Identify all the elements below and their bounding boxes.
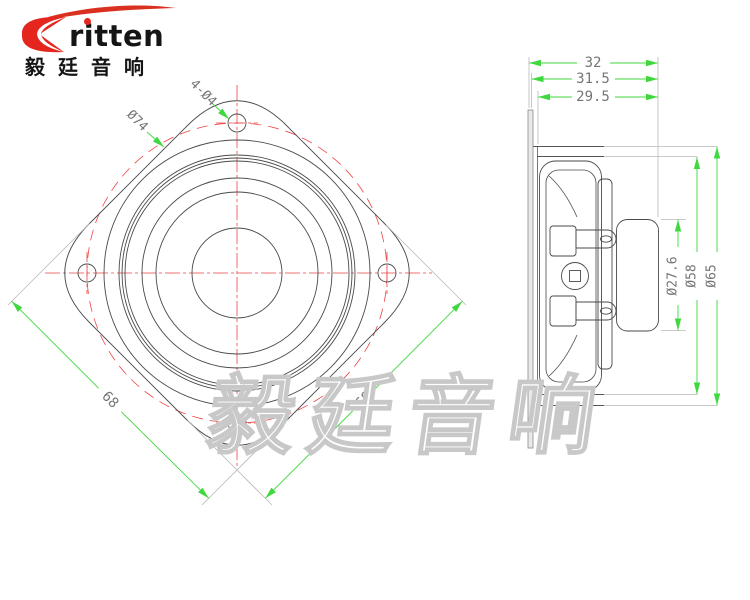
leader-mounting-holes: 4-Ø4 (187, 77, 229, 119)
technical-drawing-svg: 4-Ø4 Ø74 68 68 (0, 0, 750, 600)
dim-magnet-dia: Ø27.6 (666, 220, 681, 331)
basket-step-ring (598, 179, 612, 369)
terminal-body-top (550, 226, 576, 256)
leader-line (213, 104, 229, 119)
dim-label-bolt-circle: Ø74 (123, 107, 150, 134)
dim-square-left: 68 (12, 301, 209, 498)
dim-frame-dia: Ø58 (685, 157, 700, 395)
brand-name: ritten (69, 22, 164, 51)
magnet (617, 220, 659, 332)
logo-swoosh (48, 5, 176, 19)
dim-line (12, 301, 99, 388)
terminal-body-bottom (550, 296, 576, 326)
leader-line (147, 132, 164, 147)
screw-boss (562, 263, 589, 290)
tab-hole-bottom (601, 308, 612, 314)
dim-total-depth: 32 (529, 55, 658, 71)
dim-label-flange-dia: Ø65 (705, 264, 720, 287)
brand-logo: ritten 毅廷音响 (12, 2, 192, 82)
brand-name-chinese: 毅廷音响 (25, 51, 157, 80)
dim-flange-dia: Ø65 (705, 147, 720, 406)
cone-profile-upper (549, 176, 577, 217)
leader-bolt-circle: Ø74 (123, 107, 164, 147)
dim-depth-behind-front: 31.5 (532, 71, 659, 87)
dim-line (121, 412, 208, 499)
dim-label-frame-dia: Ø58 (685, 264, 700, 287)
brand-i-dot (84, 18, 91, 25)
screw-square-hole (570, 271, 581, 282)
dim-label-magnet-dia: Ø27.6 (666, 256, 681, 295)
extension-e (386, 225, 466, 305)
watermark-text: 毅廷音响 (201, 346, 619, 471)
tab-hole-top (601, 236, 612, 242)
extension-w (8, 224, 90, 306)
dim-label-total-depth: 32 (585, 55, 602, 71)
dim-label-square-left: 68 (98, 388, 121, 411)
terminal-block (550, 226, 616, 326)
dim-body-depth: 29.5 (538, 89, 658, 105)
logo-e-crescent (22, 17, 66, 52)
dim-label-body-depth: 29.5 (576, 89, 610, 105)
drawing-canvas: 4-Ø4 Ø74 68 68 (0, 0, 750, 600)
dim-label-depth-behind-front: 31.5 (576, 71, 610, 87)
